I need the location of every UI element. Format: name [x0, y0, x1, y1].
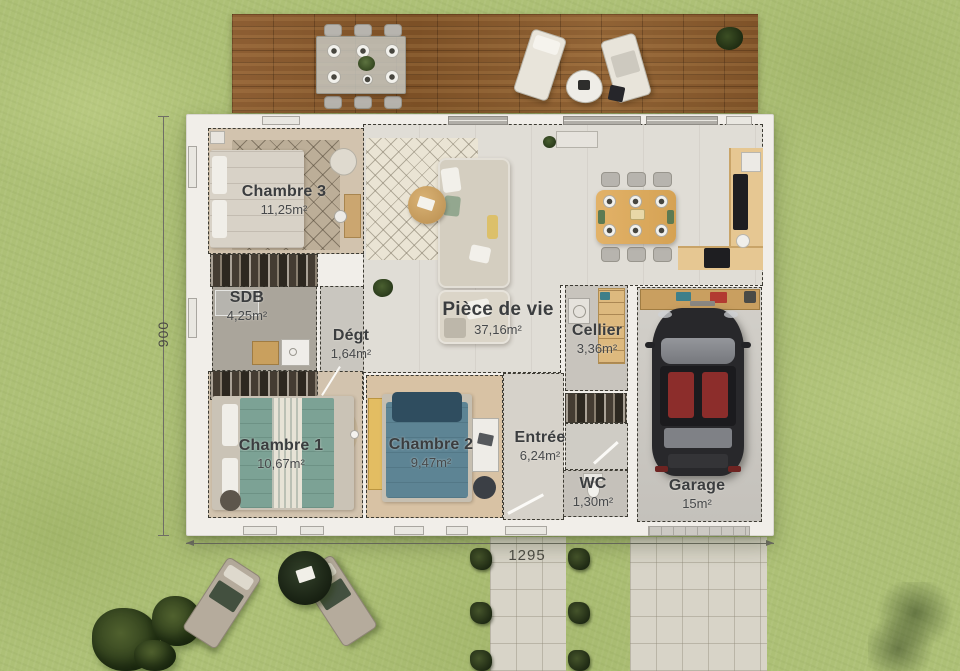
sink-vanity [281, 339, 310, 366]
driveway [630, 537, 767, 671]
dimension-tick [158, 535, 169, 536]
deck-chair [324, 96, 342, 109]
windshield [661, 338, 735, 364]
shrub [568, 602, 590, 624]
room-area: 1,30m² [573, 494, 613, 511]
garage-door [648, 526, 750, 536]
fridge [741, 152, 761, 172]
plate [327, 44, 341, 58]
plate [655, 195, 668, 208]
room-area: 10,67m² [239, 456, 324, 473]
dining-chair [653, 172, 672, 187]
room-name: Entrée [515, 428, 566, 448]
bathroom-cabinet [252, 341, 279, 365]
room-label-sdb: SDB 4,25m² [227, 288, 267, 325]
room-area: 11,25m² [242, 202, 327, 219]
room-name: WC [573, 474, 613, 494]
plate [385, 44, 399, 58]
room-area: 4,25m² [227, 308, 267, 325]
deck-chair [354, 96, 372, 109]
plate [603, 224, 616, 237]
plate [327, 70, 341, 84]
dining-chair [601, 172, 620, 187]
room-label-cellier: Cellier 3,36m² [572, 321, 622, 358]
taillight [655, 466, 668, 472]
dining-chair [653, 247, 672, 262]
pillow [440, 167, 461, 193]
room-label-piece-de-vie: Pièce de vie 37,16m² [442, 298, 553, 339]
dining-chair [627, 172, 646, 187]
storage-box [600, 292, 610, 300]
room-label-chambre2: Chambre 2 9,47m² [389, 435, 474, 472]
book [295, 566, 315, 584]
room-name: Chambre 3 [242, 182, 327, 202]
window [262, 116, 300, 125]
garden-table [278, 551, 332, 605]
desk-chair [334, 210, 347, 223]
window [446, 526, 468, 535]
shrub [470, 602, 492, 624]
console-table [556, 131, 598, 148]
car-seat [668, 372, 694, 418]
shrub [470, 548, 492, 570]
washbasin [289, 348, 297, 356]
rear-window [664, 428, 732, 448]
napkin [598, 210, 605, 224]
room-area: 3,36m² [572, 341, 622, 358]
plate [629, 224, 642, 237]
headlight [658, 311, 672, 318]
kitchen-sink [736, 234, 750, 248]
dining-chair [601, 247, 620, 262]
pillow [487, 215, 498, 239]
room-name: Garage [669, 476, 725, 496]
pillow [392, 392, 462, 422]
plate [629, 195, 642, 208]
pouf [220, 490, 241, 511]
dimension-arrow-right [766, 540, 774, 546]
room-area: 15m² [669, 496, 725, 513]
window [726, 116, 752, 125]
headlight [724, 311, 738, 318]
nightstand [210, 131, 225, 144]
tool [676, 292, 691, 301]
room-name: Chambre 2 [389, 435, 474, 455]
window [300, 526, 324, 535]
room-name: Dégt [331, 326, 371, 346]
room-area: 6,24m² [515, 448, 566, 465]
wall-dash [560, 285, 561, 373]
room-area: 37,16m² [442, 322, 553, 339]
dimension-height-label: 900 [155, 319, 171, 349]
plate [603, 195, 616, 208]
oven [704, 248, 730, 268]
dimension-tick [158, 116, 169, 117]
wardrobe [210, 254, 318, 287]
washer-door [573, 305, 586, 318]
side-mirror [741, 342, 751, 348]
lamp [350, 430, 359, 439]
pillow [212, 200, 227, 238]
room-area: 1,64m² [331, 346, 371, 363]
dimension-arrow-left [186, 540, 194, 546]
side-mirror [645, 342, 655, 348]
plate [385, 70, 399, 84]
room-name: SDB [227, 288, 267, 308]
cooktop [733, 174, 748, 230]
tree [134, 640, 176, 671]
lounger-pillow [532, 34, 561, 55]
room-label-chambre3: Chambre 3 11,25m² [242, 182, 327, 219]
sliding-door [646, 116, 718, 125]
room-name: Pièce de vie [442, 298, 553, 322]
pillow [222, 404, 238, 446]
tool [744, 291, 756, 303]
room-label-garage: Garage 15m² [669, 476, 725, 513]
desk [472, 418, 499, 472]
lounger-towel [610, 50, 640, 78]
deck-chair [384, 96, 402, 109]
centerpiece-plant [358, 56, 375, 71]
deck [232, 14, 758, 113]
car [652, 308, 744, 476]
tool [690, 301, 715, 306]
closet [565, 393, 627, 423]
site-plan: 900 1295 [0, 0, 960, 671]
window [394, 526, 424, 535]
coffee-table [408, 186, 446, 224]
book [417, 196, 436, 211]
sliding-door [563, 116, 641, 125]
dimension-width-label: 1295 [497, 547, 557, 564]
room-label-wc: WC 1,30m² [573, 474, 613, 511]
sliding-door [448, 116, 508, 125]
window [243, 526, 277, 535]
room-label-entree: Entrée 6,24m² [515, 428, 566, 465]
bush-patch [868, 582, 954, 671]
laptop [477, 433, 494, 447]
workbench [640, 289, 760, 310]
stool [473, 476, 496, 499]
pillow [212, 156, 227, 194]
car-seat [702, 372, 728, 418]
room-label-chambre1: Chambre 1 10,67m² [239, 436, 324, 473]
napkin [667, 210, 674, 224]
shrub [568, 548, 590, 570]
table-decor [578, 80, 590, 90]
dimension-line-horizontal [186, 543, 774, 544]
room-label-degt: Dégt 1,64m² [331, 326, 371, 363]
front-door [505, 526, 547, 535]
shrub [568, 650, 590, 671]
window [188, 146, 197, 188]
plate [655, 224, 668, 237]
taillight [728, 466, 741, 472]
window [188, 298, 197, 338]
plate [362, 74, 373, 85]
houseplant [543, 136, 556, 148]
trunk [668, 454, 728, 468]
room-area: 9,47m² [389, 455, 474, 472]
deck-speaker [608, 85, 626, 103]
room-name: Cellier [572, 321, 622, 341]
table-centerpiece [630, 209, 645, 220]
shrub [470, 650, 492, 671]
room-name: Chambre 1 [239, 436, 324, 456]
dining-chair [627, 247, 646, 262]
